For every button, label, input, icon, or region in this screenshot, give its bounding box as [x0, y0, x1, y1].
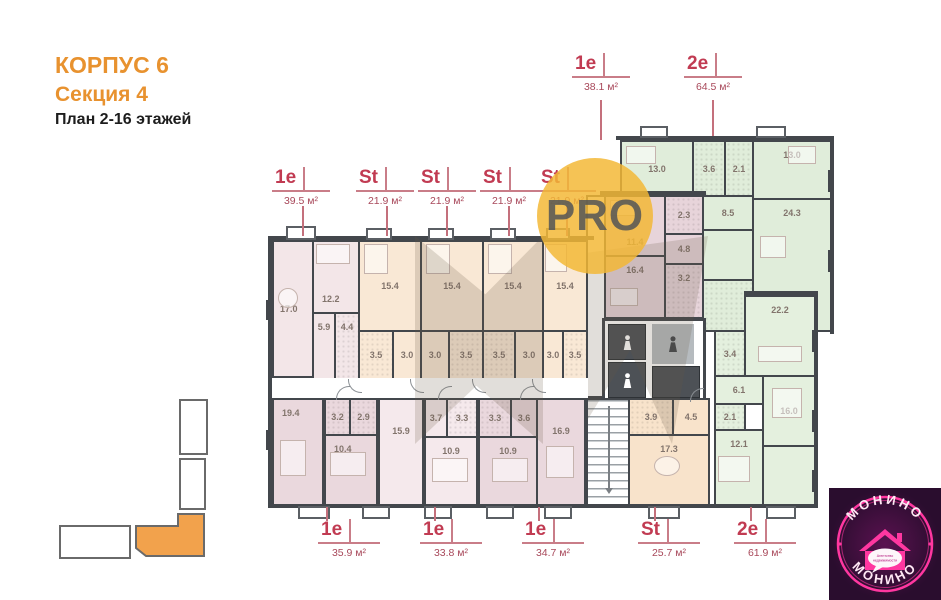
balcony [286, 226, 316, 240]
balcony [428, 228, 454, 240]
apartment-area-label: 34.7 м² [522, 547, 584, 559]
callout-apt-34-7: 1e 34.7 м² [522, 520, 584, 559]
callout-divider [765, 519, 767, 542]
callout-leader [654, 507, 656, 521]
room-apt61-living: 22.2 [744, 295, 816, 377]
outer-wall [268, 236, 272, 508]
room-apt64-hall: 8.5 [702, 195, 754, 231]
room-apt35-bath2: 2.9 [349, 398, 378, 436]
room-area-label: 15.4 [381, 281, 399, 291]
apartment-area-label: 61.9 м² [734, 547, 796, 559]
room-area-label: 22.2 [771, 305, 789, 375]
callout-apt-61-9: 2e 61.9 м² [734, 520, 796, 559]
callout-rule [480, 190, 538, 192]
callout-leader [326, 507, 328, 521]
logo-dot [928, 542, 931, 545]
furniture-sofa [280, 440, 306, 476]
room-area-label: 3.6 [703, 164, 716, 174]
wall-pillar [812, 330, 818, 352]
callout-divider [667, 519, 669, 542]
outer-wall [744, 291, 818, 295]
callout-divider [509, 167, 511, 190]
outer-wall [830, 136, 834, 334]
outer-wall [712, 504, 818, 508]
room-apt64-bath1: 3.6 [692, 140, 726, 197]
room-area-label: 3.5 [370, 350, 383, 360]
furniture-bed [316, 244, 350, 264]
callout-rule [734, 542, 796, 544]
logo-house-chimney-icon [897, 533, 902, 542]
callout-rule [684, 76, 742, 78]
pro-watermark: PRO [537, 158, 653, 274]
room-area-label: 8.5 [722, 208, 735, 218]
callout-divider [447, 167, 449, 190]
wall-pillar [812, 410, 818, 432]
balcony [424, 506, 452, 519]
callout-leader [386, 206, 388, 236]
room-area-label: 15.9 [392, 426, 410, 504]
apartment-area-label: 33.8 м² [420, 547, 482, 559]
room-area-label: 3.5 [569, 350, 582, 360]
furniture-bed [492, 458, 528, 482]
room-area-label: 3.0 [401, 350, 414, 360]
callout-leader [750, 507, 752, 521]
wall-pillar [266, 300, 272, 320]
logo-tagline-line1: Агентство [877, 554, 894, 558]
furniture-bed [432, 458, 468, 482]
furniture-bed [488, 244, 512, 274]
callout-apt-38-1: 1e 38.1 м² [572, 54, 630, 93]
logo-tagline-line2: недвижимости [873, 559, 897, 563]
apartment-type-label: St [480, 168, 502, 187]
title-block: КОРПУС 6 Секция 4 План 2-16 этажей [55, 50, 191, 132]
wall-pillar [828, 170, 834, 192]
room-area-label: 4.4 [341, 322, 354, 378]
callout-divider [451, 519, 453, 542]
room-st4-bath: 3.5 [562, 330, 588, 380]
room-area-label: 2.1 [724, 412, 737, 422]
callout-st-3: St 21.9 м² [480, 168, 538, 207]
callout-st-2: St 21.9 м² [418, 168, 476, 207]
room-area-label: 3.0 [547, 350, 560, 360]
callout-apt-39-5: 1e 39.5 м² [272, 168, 330, 207]
callout-leader [446, 206, 448, 236]
floorplan-page: КОРПУС 6 Секция 4 План 2-16 этажей 17.0 … [0, 0, 941, 600]
apartment-type-label: 2e [684, 54, 708, 73]
callout-rule [356, 190, 414, 192]
building-title: КОРПУС 6 [55, 50, 191, 81]
room-area-label: 3.2 [331, 412, 344, 422]
apartment-type-label: 1e [522, 520, 546, 539]
apartment-type-label: 1e [572, 54, 596, 73]
furniture-bed [546, 446, 574, 478]
callout-rule [418, 190, 476, 192]
apartment-area-label: 64.5 м² [684, 81, 742, 93]
section-key-plan [55, 395, 210, 570]
apartment-type-label: St [356, 168, 378, 187]
callout-divider [553, 519, 555, 542]
furniture-bed [626, 146, 656, 164]
keyplan-section [60, 526, 130, 558]
balcony [366, 228, 392, 240]
furniture-sofa [758, 346, 802, 362]
apartment-area-label: 21.9 м² [356, 195, 414, 207]
room-area-label: 6.1 [733, 385, 746, 395]
pro-watermark-label: PRO [546, 191, 644, 241]
room-area-label: 3.3 [489, 413, 502, 423]
callout-rule [272, 190, 330, 192]
room-apt64-bath2: 2.1 [724, 140, 754, 197]
room-apt39-bath: 4.4 [334, 312, 360, 380]
callout-rule [522, 542, 584, 544]
wall-pillar [812, 470, 818, 492]
furniture-table [654, 456, 680, 476]
room-area-label: 15.4 [556, 281, 574, 291]
balcony [362, 506, 390, 519]
callout-leader [434, 507, 436, 521]
logo-dot [838, 542, 841, 545]
agency-logo: МОНИНО МОНИНО Агентство недвижимости [829, 488, 941, 600]
room-apt61-hall: 6.1 [714, 375, 764, 405]
room-apt61-storage: 3.4 [714, 330, 746, 377]
apartment-area-label: 35.9 м² [318, 547, 380, 559]
room-apt35-bath1: 3.2 [324, 398, 351, 436]
callout-divider [349, 519, 351, 542]
room-area-label: 5.9 [318, 322, 331, 378]
apartment-type-label: St [638, 520, 660, 539]
room-st4-hall: 3.0 [542, 330, 564, 380]
callout-rule [420, 542, 482, 544]
wall-pillar [266, 430, 272, 450]
room-area-label: 4.5 [685, 412, 698, 422]
apartment-type-label: 1e [318, 520, 342, 539]
callout-rule [638, 542, 700, 544]
room-apt61-utility [762, 445, 816, 506]
apartment-area-label: 38.1 м² [572, 81, 630, 93]
balcony [648, 506, 680, 519]
callout-leader [600, 100, 602, 140]
balcony [640, 126, 668, 138]
keyplan-section [180, 459, 205, 509]
room-area-label: 2.9 [357, 412, 370, 422]
room-area-label: 3.3 [456, 413, 469, 423]
room-apt38-bath: 2.3 [664, 195, 704, 235]
furniture-bed [718, 456, 750, 482]
furniture-bed [330, 452, 366, 476]
keyplan-section [180, 400, 207, 454]
callout-st-1: St 21.9 м² [356, 168, 414, 207]
wall-pillar [828, 250, 834, 272]
callout-leader [508, 206, 510, 236]
callout-divider [715, 53, 717, 76]
furniture-table [760, 236, 786, 258]
callout-divider [303, 167, 305, 190]
room-area-label: 2.1 [733, 164, 746, 174]
callout-apt-35-9: 1e 35.9 м² [318, 520, 380, 559]
furniture-bed [364, 244, 388, 274]
apartment-type-label: 1e [420, 520, 444, 539]
callout-apt-33-8: 1e 33.8 м² [420, 520, 482, 559]
room-st1-bath: 3.5 [358, 330, 394, 380]
furniture-table [278, 288, 298, 308]
room-apt61-bath: 2.1 [714, 403, 746, 431]
callout-st-25-7: St 25.7 м² [638, 520, 700, 559]
callout-leader [712, 100, 714, 136]
apartment-area-label: 25.7 м² [638, 547, 700, 559]
keyplan-current-section [136, 514, 204, 556]
callout-divider [385, 167, 387, 190]
apartment-type-label: St [418, 168, 440, 187]
room-apt39-hall: 5.9 [312, 312, 336, 380]
balcony [766, 506, 796, 519]
section-title: Секция 4 [55, 81, 191, 109]
balcony [544, 506, 572, 519]
apartment-type-label: 2e [734, 520, 758, 539]
room-area-label: 2.3 [678, 210, 691, 220]
callout-leader [302, 206, 304, 236]
floors-subtitle: План 2-16 этажей [55, 109, 191, 131]
balcony [486, 506, 514, 519]
callout-apt-64-5: 2e 64.5 м² [684, 54, 742, 93]
balcony [490, 228, 516, 240]
stairs-direction-arrow [608, 406, 610, 492]
room-apt39-living: 17.0 [272, 240, 314, 378]
room-apt64-utility1 [702, 229, 754, 281]
callout-rule [572, 76, 630, 78]
furniture-bed [772, 388, 802, 418]
room-area-label: 3.9 [645, 412, 658, 422]
elevator-person-icon [620, 372, 635, 389]
stairwell [586, 398, 630, 506]
callout-divider [603, 53, 605, 76]
callout-rule [318, 542, 380, 544]
apartment-area-label: 39.5 м² [272, 195, 330, 207]
room-area-label: 13.0 [648, 164, 666, 174]
room-area-label: 12.2 [322, 294, 340, 304]
balcony [756, 126, 786, 138]
apartment-type-label: 1e [272, 168, 296, 187]
room-area-label: 3.4 [724, 349, 737, 359]
callout-leader [538, 507, 540, 521]
furniture-bed [788, 146, 816, 164]
